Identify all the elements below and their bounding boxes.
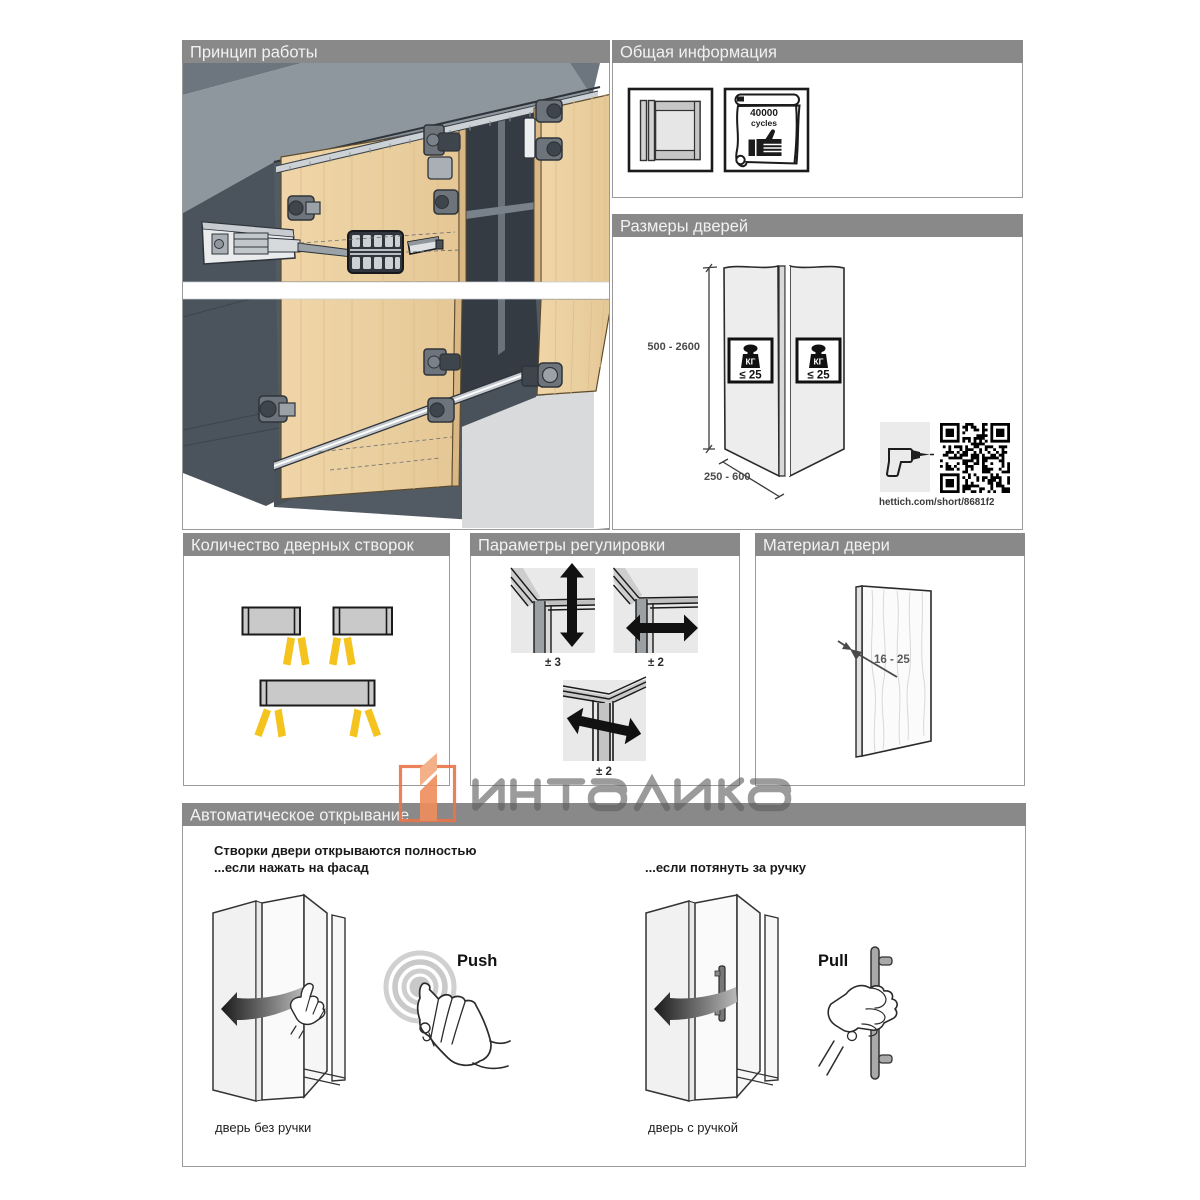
svg-text:≤ 25: ≤ 25 xyxy=(807,370,830,382)
svg-text:500 - 2600: 500 - 2600 xyxy=(647,341,700,353)
svg-text:КГ: КГ xyxy=(745,357,755,367)
svg-text:Размеры дверей: Размеры дверей xyxy=(620,218,748,236)
svg-text:cycles: cycles xyxy=(751,118,777,128)
svg-text:Принцип работы: Принцип работы xyxy=(190,44,318,62)
svg-text:КГ: КГ xyxy=(813,357,823,367)
svg-text:Количество дверных створок: Количество дверных створок xyxy=(191,537,414,555)
svg-text:Створки двери открываются полн: Створки двери открываются полностью xyxy=(214,843,476,858)
svg-text:дверь без ручки: дверь без ручки xyxy=(215,1120,311,1135)
svg-text:...если потянуть за ручку: ...если потянуть за ручку xyxy=(645,860,807,875)
svg-text:Pull: Pull xyxy=(818,952,848,970)
svg-text:Материал двери: Материал двери xyxy=(763,537,890,555)
svg-text:Автоматическое открывание: Автоматическое открывание xyxy=(190,807,409,825)
svg-text:± 2: ± 2 xyxy=(648,657,664,669)
svg-text:≤ 25: ≤ 25 xyxy=(739,370,762,382)
svg-text:16 - 25: 16 - 25 xyxy=(874,654,910,666)
svg-text:± 3: ± 3 xyxy=(545,657,561,669)
svg-text:hettich.com/short/8681f2: hettich.com/short/8681f2 xyxy=(879,497,995,508)
svg-text:Параметры регулировки: Параметры регулировки xyxy=(478,537,665,555)
svg-text:250 - 600: 250 - 600 xyxy=(704,471,750,483)
svg-text:дверь с ручкой: дверь с ручкой xyxy=(648,1120,738,1135)
svg-text:...если нажать на фасад: ...если нажать на фасад xyxy=(214,860,370,875)
svg-text:Общая информация: Общая информация xyxy=(620,44,777,62)
svg-text:Push: Push xyxy=(457,952,497,970)
svg-text:± 2: ± 2 xyxy=(596,766,612,778)
